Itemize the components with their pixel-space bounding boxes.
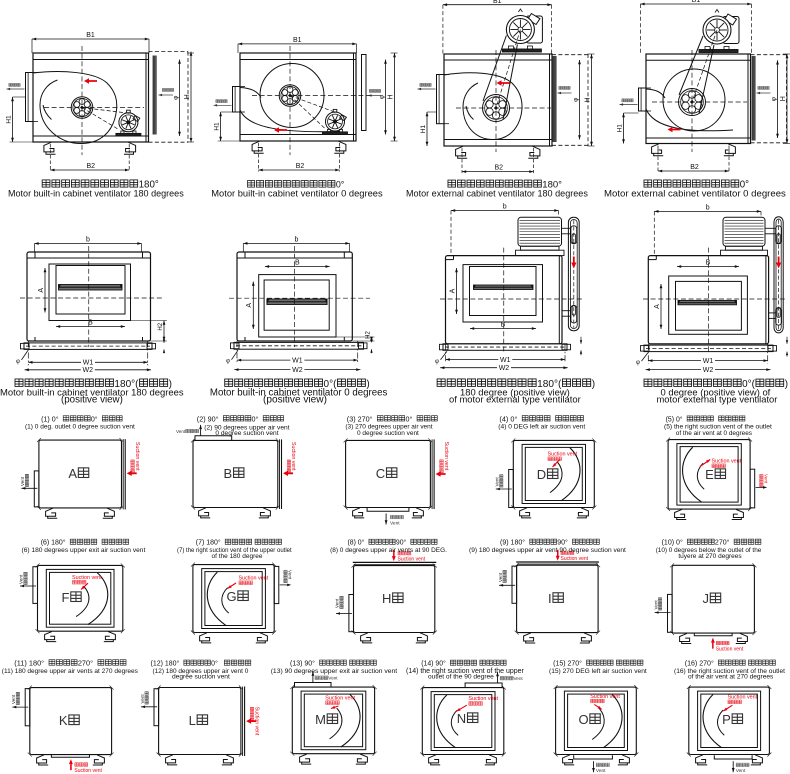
svg-text:(4) 0°: (4) 0° xyxy=(499,414,517,423)
svg-text:Suction vent: Suction vent xyxy=(548,452,578,458)
svg-text:K: K xyxy=(59,713,68,728)
svg-text:Vent: Vent xyxy=(763,474,768,484)
svg-text:A: A xyxy=(654,304,661,309)
svg-text:W1: W1 xyxy=(500,357,511,364)
svg-text:(12) 180°: (12) 180° xyxy=(151,660,180,668)
svg-text:(15) 270 DEG left air suction: (15) 270 DEG left air suction vent xyxy=(549,668,647,675)
svg-text:270°: 270° xyxy=(78,659,93,668)
svg-text:Vent: Vent xyxy=(140,694,145,704)
svg-text:(3) 270°: (3) 270° xyxy=(347,414,373,423)
svg-text:Vent: Vent xyxy=(498,572,503,582)
svg-text:Vent: Vent xyxy=(328,676,338,681)
svg-text:Vent: Vent xyxy=(736,768,746,774)
svg-text:Vent: Vent xyxy=(596,768,606,774)
svg-text:Suction vent: Suction vent xyxy=(74,768,102,774)
svg-text:H2: H2 xyxy=(158,322,164,330)
svg-text:B2: B2 xyxy=(494,165,503,172)
svg-text:H1: H1 xyxy=(420,124,427,133)
svg-text:degree suction vent: degree suction vent xyxy=(172,674,230,681)
svg-text:(11) 180 degree upper air vent: (11) 180 degree upper air vents at 270 d… xyxy=(2,668,139,675)
svg-text:tuyere at 270 degrees: tuyere at 270 degrees xyxy=(678,553,742,560)
svg-text:Suction vent: Suction vent xyxy=(561,556,589,562)
svg-text:Motor built-in cabinet ventila: Motor built-in cabinet ventilator 0 degr… xyxy=(211,188,383,198)
svg-text:Suction vent: Suction vent xyxy=(468,696,498,702)
svg-text:Suction vent: Suction vent xyxy=(443,442,449,471)
svg-text:Suction vent: Suction vent xyxy=(712,459,742,465)
svg-text:(7) 180°: (7) 180° xyxy=(196,539,221,547)
svg-text:H1: H1 xyxy=(616,124,623,133)
svg-text:Vent: Vent xyxy=(11,694,16,704)
svg-text:B1: B1 xyxy=(86,32,95,39)
svg-text:Suction vent: Suction vent xyxy=(325,695,355,701)
svg-text:0°: 0° xyxy=(211,660,218,668)
svg-text:φ: φ xyxy=(435,359,439,365)
svg-text:Vent: Vent xyxy=(287,570,292,580)
svg-text:J: J xyxy=(703,591,710,606)
svg-text:(2) 90°: (2) 90° xyxy=(197,414,219,423)
svg-text:Vent: Vent xyxy=(19,574,24,584)
svg-text:0 degree suction vent: 0 degree suction vent xyxy=(215,430,278,437)
svg-text:A: A xyxy=(246,303,253,308)
svg-text:Motor external cabinet ventila: Motor external cabinet ventilator 180 de… xyxy=(406,188,588,198)
svg-text:Vent: Vent xyxy=(495,477,500,487)
svg-text:90°: 90° xyxy=(557,539,568,547)
svg-text:(positive view): (positive view) xyxy=(263,395,327,406)
svg-text:φ: φ xyxy=(172,96,179,100)
svg-text:Suction vent: Suction vent xyxy=(290,442,296,471)
svg-text:270°: 270° xyxy=(715,539,730,547)
svg-text:W2: W2 xyxy=(703,367,714,374)
svg-text:90°: 90° xyxy=(396,539,407,547)
svg-text:W2: W2 xyxy=(292,367,303,374)
svg-text:b: b xyxy=(86,237,90,244)
svg-text:Vent: Vent xyxy=(390,521,400,527)
svg-text:Suction vent: Suction vent xyxy=(590,694,620,700)
svg-text:(11) 180°: (11) 180° xyxy=(14,659,44,668)
svg-text:b: b xyxy=(706,205,710,212)
svg-text:W2: W2 xyxy=(499,365,510,372)
svg-text:B1: B1 xyxy=(493,0,502,5)
svg-text:0°: 0° xyxy=(252,414,259,423)
svg-text:Motor built-in cabinet ventila: Motor built-in cabinet ventilator 180 de… xyxy=(8,188,184,198)
svg-text:Vent: Vent xyxy=(335,598,340,608)
svg-text:B: B xyxy=(224,466,233,481)
svg-text:Suction vent: Suction vent xyxy=(728,695,758,701)
svg-text:B: B xyxy=(501,322,506,329)
svg-text:φ: φ xyxy=(636,360,640,366)
svg-text:φ: φ xyxy=(572,98,579,102)
svg-text:(6) 180°: (6) 180° xyxy=(41,539,66,547)
svg-text:(1) 0 deg. outlet 0 degree suc: (1) 0 deg. outlet 0 degree suction vent xyxy=(25,424,135,431)
svg-text:φ: φ xyxy=(226,359,230,365)
svg-text:I: I xyxy=(548,591,552,606)
svg-text:(6) 180 degrees upper exit air: (6) 180 degrees upper exit air suction v… xyxy=(22,547,146,554)
svg-text:(5) 0°: (5) 0° xyxy=(666,415,683,423)
svg-text:0°: 0° xyxy=(91,415,98,423)
svg-text:B2: B2 xyxy=(690,164,699,171)
svg-text:L: L xyxy=(189,713,196,728)
svg-text:φ: φ xyxy=(16,359,20,365)
svg-text:Suction vent: Suction vent xyxy=(72,575,102,581)
svg-text:Vent: Vent xyxy=(514,676,524,681)
svg-text:G: G xyxy=(226,589,236,604)
svg-text:(8) 0°: (8) 0° xyxy=(347,539,364,547)
svg-text:H: H xyxy=(382,591,391,606)
svg-text:E: E xyxy=(705,467,714,482)
svg-text:0°: 0° xyxy=(405,414,412,423)
svg-text:(8) 0 degrees upper air vents: (8) 0 degrees upper air vents at 90 DEG. xyxy=(330,547,447,554)
svg-text:H: H xyxy=(184,94,191,99)
svg-text:(1) 0°: (1) 0° xyxy=(41,415,59,423)
svg-text:(positive view): (positive view) xyxy=(61,395,123,406)
svg-text:H: H xyxy=(584,97,591,102)
svg-text:B1: B1 xyxy=(293,37,302,44)
svg-text:Vent: Vent xyxy=(653,600,658,610)
svg-text:Suction vent: Suction vent xyxy=(398,557,426,563)
svg-text:H: H xyxy=(780,96,787,101)
svg-text:B1: B1 xyxy=(692,0,701,4)
svg-text:(10) 0°: (10) 0° xyxy=(662,539,683,547)
svg-text:(16) 270°: (16) 270° xyxy=(685,660,714,668)
svg-text:): ) xyxy=(785,379,788,390)
svg-text:H2: H2 xyxy=(365,330,371,338)
svg-text:(9) 180°: (9) 180° xyxy=(500,539,525,547)
svg-text:O: O xyxy=(578,712,588,727)
svg-text:A: A xyxy=(68,466,77,481)
svg-text:C: C xyxy=(376,466,385,481)
svg-text:φ: φ xyxy=(770,97,777,101)
svg-text:A: A xyxy=(449,288,456,293)
svg-text:B2: B2 xyxy=(296,163,305,170)
svg-text:(14) 90°: (14) 90° xyxy=(421,660,446,668)
svg-text:A: A xyxy=(38,288,45,293)
svg-text:B2: B2 xyxy=(86,163,95,170)
svg-text:motor external type ventilator: motor external type ventilator xyxy=(657,395,778,405)
svg-text:B: B xyxy=(295,260,300,267)
svg-text:Suction vent: Suction vent xyxy=(134,442,140,471)
svg-text:outlet of the 90 degree: outlet of the 90 degree xyxy=(428,674,494,681)
svg-text:Vent: Vent xyxy=(176,429,186,434)
svg-text:W1: W1 xyxy=(83,360,94,367)
svg-text:W2: W2 xyxy=(83,367,94,374)
svg-text:(4) 0 DEG left air suction ven: (4) 0 DEG left air suction vent xyxy=(498,424,585,431)
svg-text:of the air vent at 270 degrees: of the air vent at 270 degrees xyxy=(688,674,774,681)
svg-text:P: P xyxy=(722,712,731,727)
svg-text:Suction vent: Suction vent xyxy=(239,576,269,582)
svg-text:0 degree suction vent: 0 degree suction vent xyxy=(357,430,419,437)
svg-text:(13) 90 degrees upper exit air: (13) 90 degrees upper exit air suction v… xyxy=(271,668,398,675)
svg-text:(13) 90°: (13) 90° xyxy=(290,660,315,668)
svg-text:b: b xyxy=(295,237,299,244)
svg-text:H: H xyxy=(387,94,394,99)
svg-text:N: N xyxy=(457,711,466,726)
svg-text:Vent: Vent xyxy=(20,476,25,486)
svg-text:b: b xyxy=(503,204,507,211)
svg-text:D: D xyxy=(537,467,546,482)
svg-text:of the 180 degree: of the 180 degree xyxy=(212,553,263,560)
svg-text:): ) xyxy=(592,379,595,390)
svg-text:H1: H1 xyxy=(213,122,220,131)
svg-text:W1: W1 xyxy=(292,358,303,365)
svg-text:H1: H1 xyxy=(5,115,12,124)
svg-text:Motor external cabinet ventila: Motor external cabinet ventilator 0 degr… xyxy=(604,188,786,199)
svg-text:M: M xyxy=(315,712,326,727)
svg-text:of motor external type ventila: of motor external type ventilator xyxy=(449,394,581,405)
svg-text:(15) 270°: (15) 270° xyxy=(553,660,582,668)
svg-text:Suction vent: Suction vent xyxy=(716,646,744,652)
svg-text:W1: W1 xyxy=(703,358,714,365)
svg-text:(9) 180 degrees upper air vent: (9) 180 degrees upper air vent 90 degree… xyxy=(469,547,626,554)
svg-text:of the air vent at 0 degrees: of the air vent at 0 degrees xyxy=(676,430,752,437)
svg-text:F: F xyxy=(62,590,70,605)
svg-text:φ: φ xyxy=(378,95,385,99)
